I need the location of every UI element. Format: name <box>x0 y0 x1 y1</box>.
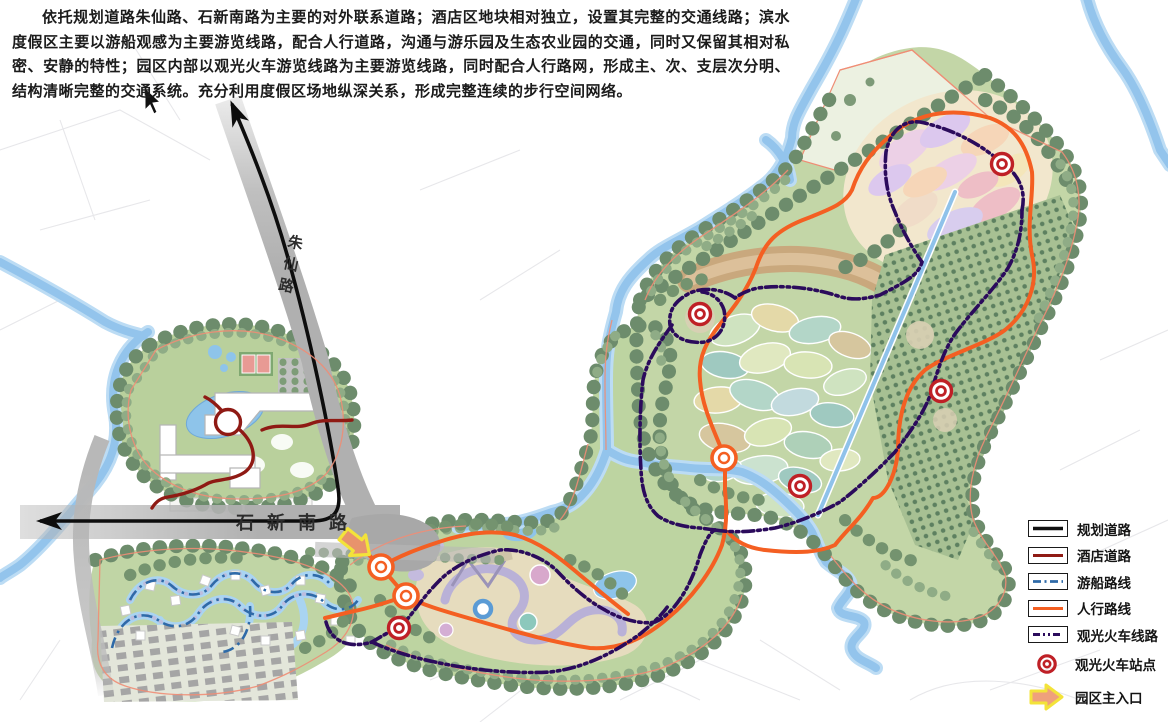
legend-item-main-entrance: 园区主入口 <box>1028 682 1168 712</box>
boat-route-swatch-icon <box>1028 573 1068 590</box>
legend: 规划道路 酒店道路 游船路线 人行路线 观光火车线路 观光火车站点 <box>1028 518 1168 718</box>
shixin-road-label: 石新南路 <box>235 512 360 533</box>
legend-item-train-route: 观光火车线路 <box>1028 624 1168 645</box>
legend-item-pedestrian-route: 人行路线 <box>1028 598 1168 619</box>
pedestrian-route-swatch-icon <box>1028 600 1068 617</box>
legend-item-hotel-road: 酒店道路 <box>1028 545 1168 566</box>
plan-description-paragraph: 依托规划道路朱仙路、石新南路为主要的对外联系道路；酒店区地块相对独立，设置其完整… <box>12 6 790 104</box>
legend-item-train-station: 观光火车站点 <box>1028 651 1168 677</box>
planning-road-swatch-icon <box>1028 520 1068 537</box>
main-entrance-symbol-icon <box>1028 686 1066 708</box>
plan-map-page: { "description": { "text": "依托规划道路朱仙路、石新… <box>0 0 1168 722</box>
train-route-swatch-icon <box>1028 626 1068 643</box>
legend-item-boat-route: 游船路线 <box>1028 571 1168 592</box>
hotel-road-swatch-icon <box>1028 547 1068 564</box>
legend-item-planning-road: 规划道路 <box>1028 518 1168 539</box>
train-station-symbol-icon <box>1028 653 1066 675</box>
master-plan-map: 朱仙路 石新南路 <box>0 0 1168 722</box>
